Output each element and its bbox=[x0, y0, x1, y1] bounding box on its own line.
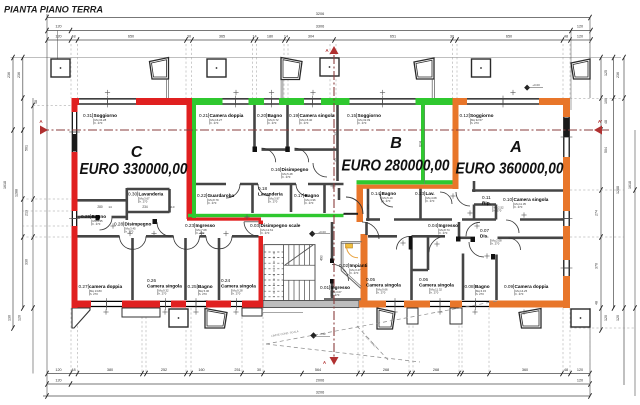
svg-text:236: 236 bbox=[17, 72, 21, 78]
svg-text:48: 48 bbox=[34, 100, 38, 104]
svg-text:0.08: 0.08 bbox=[465, 284, 475, 289]
svg-text:h. 270: h. 270 bbox=[332, 293, 340, 297]
svg-text:30: 30 bbox=[187, 35, 191, 39]
svg-text:252: 252 bbox=[161, 368, 167, 372]
svg-text:14: 14 bbox=[333, 132, 337, 136]
svg-text:h. 270: h. 270 bbox=[383, 199, 391, 203]
svg-text:h. 270: h. 270 bbox=[431, 291, 439, 295]
svg-text:604: 604 bbox=[419, 141, 423, 147]
svg-text:561: 561 bbox=[25, 145, 29, 151]
svg-text:1618: 1618 bbox=[628, 181, 632, 189]
svg-text:0.13: 0.13 bbox=[415, 191, 425, 196]
svg-text:380: 380 bbox=[107, 368, 113, 372]
svg-text:B: B bbox=[390, 135, 402, 152]
svg-text:30: 30 bbox=[450, 35, 454, 39]
svg-text:0.14: 0.14 bbox=[371, 191, 381, 196]
svg-text:120: 120 bbox=[55, 25, 61, 29]
svg-text:h. 270: h. 270 bbox=[95, 121, 103, 125]
svg-text:0.21: 0.21 bbox=[199, 113, 209, 118]
svg-text:48: 48 bbox=[564, 368, 568, 372]
svg-text:0.22: 0.22 bbox=[197, 193, 207, 198]
svg-text:EURO 360000,00: EURO 360000,00 bbox=[456, 161, 564, 178]
svg-text:0.02: 0.02 bbox=[339, 263, 349, 268]
svg-text:30: 30 bbox=[257, 368, 261, 372]
svg-text:0.04: 0.04 bbox=[428, 223, 438, 228]
svg-text:PIANTA PIANO TERRA: PIANTA PIANO TERRA bbox=[4, 5, 103, 15]
svg-text:h. 270: h. 270 bbox=[427, 199, 435, 203]
svg-text:130: 130 bbox=[8, 315, 12, 321]
svg-text:2006: 2006 bbox=[316, 379, 324, 383]
svg-text:251: 251 bbox=[234, 368, 240, 372]
svg-text:0.06: 0.06 bbox=[419, 277, 429, 282]
svg-text:h. 270: h. 270 bbox=[140, 200, 148, 204]
svg-text:564: 564 bbox=[315, 368, 321, 372]
svg-text:120: 120 bbox=[577, 368, 583, 372]
svg-text:160: 160 bbox=[198, 368, 204, 372]
svg-text:120: 120 bbox=[577, 379, 583, 383]
svg-text:14: 14 bbox=[108, 205, 112, 209]
svg-text:125: 125 bbox=[604, 70, 608, 76]
svg-text:650: 650 bbox=[506, 35, 512, 39]
svg-text:A: A bbox=[509, 139, 522, 156]
svg-text:0.19: 0.19 bbox=[289, 113, 299, 118]
svg-text:0.29: 0.29 bbox=[81, 214, 91, 219]
svg-text:120: 120 bbox=[616, 315, 620, 321]
svg-text:Rip.: Rip. bbox=[482, 201, 491, 206]
svg-text:h. 270: h. 270 bbox=[270, 200, 278, 204]
svg-text:h. 270: h. 270 bbox=[476, 292, 484, 296]
svg-text:100: 100 bbox=[604, 98, 608, 104]
svg-text:0.15: 0.15 bbox=[347, 113, 357, 118]
svg-text:h. 270: h. 270 bbox=[269, 121, 277, 125]
svg-text:0.28: 0.28 bbox=[114, 222, 124, 227]
svg-text:0.27: 0.27 bbox=[79, 284, 89, 289]
svg-text:-0.02: -0.02 bbox=[319, 332, 326, 336]
svg-text:0.30: 0.30 bbox=[128, 192, 138, 197]
svg-text:0.23: 0.23 bbox=[185, 223, 195, 228]
svg-text:Dis.: Dis. bbox=[480, 234, 489, 239]
svg-text:120: 120 bbox=[577, 25, 583, 29]
svg-text:h. 270: h. 270 bbox=[306, 201, 314, 205]
svg-text:h. 270: h. 270 bbox=[233, 292, 241, 296]
svg-text:48: 48 bbox=[604, 120, 608, 124]
svg-text:370: 370 bbox=[595, 263, 599, 269]
svg-text:h. 270: h. 270 bbox=[211, 121, 219, 125]
svg-text:h. 270: h. 270 bbox=[515, 205, 523, 209]
svg-text:A: A bbox=[323, 360, 326, 365]
svg-text:48: 48 bbox=[564, 35, 568, 39]
svg-text:236: 236 bbox=[616, 72, 620, 78]
svg-text:+0.00: +0.00 bbox=[532, 83, 540, 87]
svg-text:120: 120 bbox=[55, 35, 61, 39]
svg-text:120: 120 bbox=[55, 368, 61, 372]
svg-text:268: 268 bbox=[433, 368, 439, 372]
svg-text:h. 270: h. 270 bbox=[262, 231, 270, 235]
svg-text:h. 270: h. 270 bbox=[197, 231, 205, 235]
svg-text:3206: 3206 bbox=[316, 391, 324, 395]
svg-text:3306: 3306 bbox=[316, 25, 324, 29]
svg-text:120: 120 bbox=[55, 379, 61, 383]
svg-text:120: 120 bbox=[577, 35, 583, 39]
svg-text:h. 270: h. 270 bbox=[126, 230, 134, 234]
svg-text:0.17: 0.17 bbox=[294, 193, 304, 198]
svg-text:h. 270: h. 270 bbox=[283, 175, 291, 179]
svg-text:0.18: 0.18 bbox=[258, 186, 268, 191]
svg-text:0.25: 0.25 bbox=[188, 284, 198, 289]
svg-text:490: 490 bbox=[320, 255, 324, 261]
svg-text:0.11: 0.11 bbox=[482, 195, 491, 200]
svg-text:268: 268 bbox=[383, 368, 389, 372]
svg-text:650: 650 bbox=[128, 35, 134, 39]
svg-text:120: 120 bbox=[18, 315, 22, 321]
svg-text:304: 304 bbox=[308, 35, 314, 39]
svg-text:EURO 330000,00: EURO 330000,00 bbox=[80, 161, 188, 178]
svg-text:0.31: 0.31 bbox=[83, 113, 93, 118]
svg-text:0.01: 0.01 bbox=[320, 285, 330, 290]
svg-text:14: 14 bbox=[284, 35, 288, 39]
svg-text:360: 360 bbox=[522, 368, 528, 372]
svg-text:h. 270: h. 270 bbox=[359, 121, 367, 125]
svg-text:180: 180 bbox=[267, 35, 273, 39]
svg-text:48: 48 bbox=[595, 301, 599, 305]
svg-text:h. 270: h. 270 bbox=[301, 121, 309, 125]
svg-text:25: 25 bbox=[333, 158, 337, 162]
svg-text:C: C bbox=[131, 144, 143, 161]
svg-text:3206: 3206 bbox=[316, 12, 324, 16]
svg-text:236: 236 bbox=[7, 72, 11, 78]
svg-text:0.05: 0.05 bbox=[366, 277, 376, 282]
svg-text:h. 270: h. 270 bbox=[492, 242, 500, 246]
svg-text:365: 365 bbox=[219, 35, 225, 39]
svg-text:h. 270: h. 270 bbox=[440, 231, 448, 235]
svg-text:1618: 1618 bbox=[3, 181, 7, 189]
svg-text:0.03: 0.03 bbox=[250, 223, 260, 228]
svg-text:h. 270: h. 270 bbox=[494, 209, 502, 213]
svg-text:651: 651 bbox=[390, 35, 396, 39]
svg-text:120: 120 bbox=[604, 315, 608, 321]
svg-text:14: 14 bbox=[252, 35, 256, 39]
svg-text:234: 234 bbox=[142, 205, 148, 209]
svg-text:h. 270: h. 270 bbox=[199, 292, 207, 296]
svg-text:h. 270: h. 270 bbox=[93, 222, 101, 226]
svg-text:h. 270: h. 270 bbox=[471, 121, 479, 125]
svg-text:48: 48 bbox=[71, 35, 75, 39]
svg-text:504: 504 bbox=[604, 147, 608, 153]
svg-text:h. 270: h. 270 bbox=[516, 292, 524, 296]
svg-text:190: 190 bbox=[366, 204, 370, 209]
svg-text:0.09: 0.09 bbox=[504, 284, 514, 289]
svg-text:0.16: 0.16 bbox=[271, 167, 281, 172]
svg-text:h. 270: h. 270 bbox=[378, 291, 386, 295]
svg-text:0.10: 0.10 bbox=[503, 197, 513, 202]
svg-text:0.20: 0.20 bbox=[257, 113, 267, 118]
svg-text:280: 280 bbox=[97, 205, 103, 209]
svg-text:0.24: 0.24 bbox=[221, 278, 231, 283]
svg-text:h. 270: h. 270 bbox=[159, 292, 167, 296]
svg-text:274: 274 bbox=[595, 210, 599, 216]
svg-text:0.12: 0.12 bbox=[460, 113, 470, 118]
svg-text:+0.00: +0.00 bbox=[318, 230, 326, 234]
svg-text:110: 110 bbox=[170, 205, 175, 209]
svg-text:h. 270: h. 270 bbox=[90, 292, 98, 296]
svg-text:EURO 280000,00: EURO 280000,00 bbox=[342, 158, 450, 175]
svg-text:1288: 1288 bbox=[15, 189, 19, 197]
svg-text:0.07: 0.07 bbox=[480, 228, 490, 233]
svg-text:h. 270: h. 270 bbox=[209, 201, 217, 205]
svg-text:h. 270: h. 270 bbox=[351, 271, 359, 275]
svg-text:0.26: 0.26 bbox=[147, 278, 157, 283]
svg-text:330: 330 bbox=[25, 259, 29, 265]
svg-text:A': A' bbox=[598, 119, 602, 124]
svg-text:48: 48 bbox=[71, 368, 75, 372]
